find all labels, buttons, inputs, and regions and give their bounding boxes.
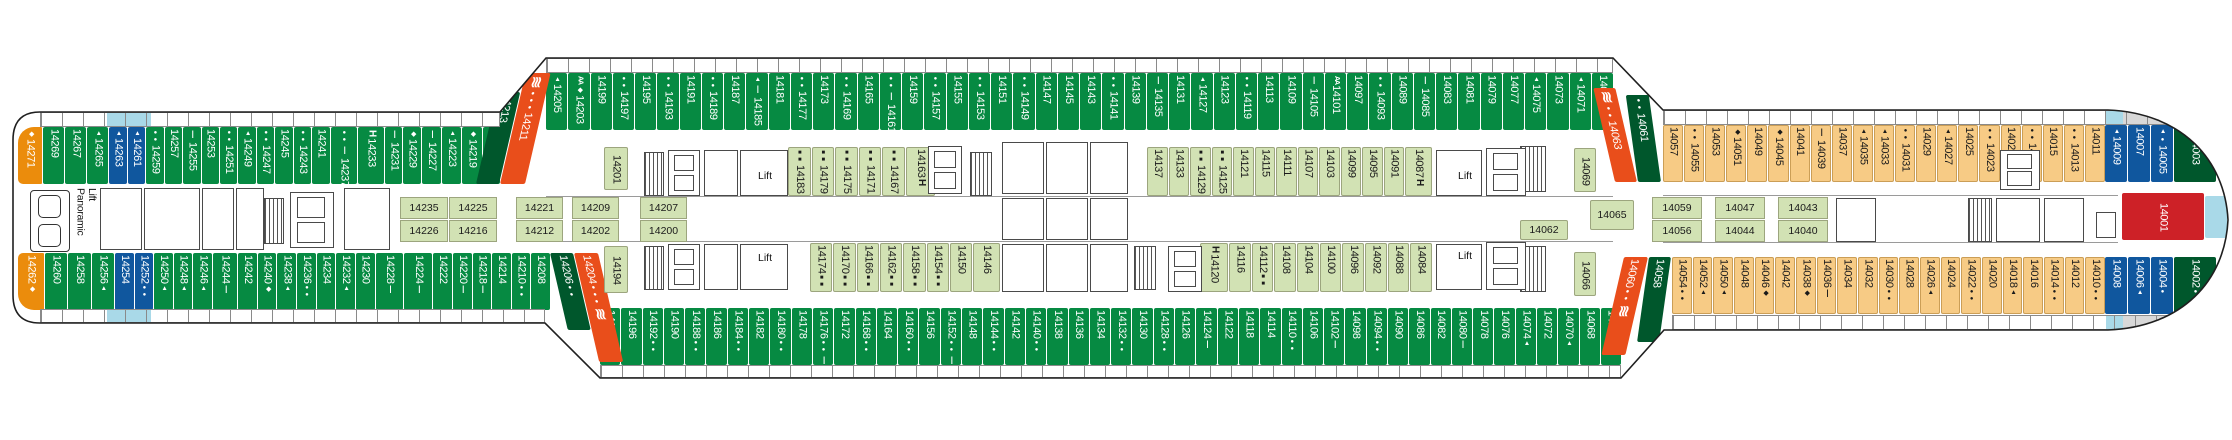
cabin-number: 14051 [1731,137,1743,166]
cabin-14092: 14092 [1365,243,1387,292]
tri-icon: ▲ [1566,340,1573,347]
cabin-number: 14197 [618,91,630,120]
cabin-14235: 14235 [400,197,448,219]
cabin-number: 14259 [149,145,161,174]
tri-icon: ▲ [1860,128,1867,135]
cabin-14121: 14121 [1233,147,1254,196]
lift-icon [668,244,700,290]
cabin-14116: 14116 [1229,243,1251,292]
dots2-icon: ●● [519,285,525,299]
cabin-number: 14201 [611,155,623,184]
cabin-number: 14096 [1348,245,1360,274]
dots2-icon: ●● [735,340,741,354]
balcony-strip-highlight [107,310,151,322]
cabin-number: 14148 [967,310,979,339]
cabin-number: 14230 [360,255,372,284]
cabin-14160: 14160●● [898,308,918,365]
dots2-icon: ●● [2029,128,2035,142]
cabin-14095: 14095 [1362,147,1383,196]
room-box [704,244,738,290]
cabin-number: 14234 [321,255,333,284]
cabin-number: 14039 [1815,140,1827,169]
dots2-icon: ●● [2071,128,2077,142]
cabin-number: 14035 [1857,136,1869,165]
sq2-icon: ■■ [842,275,848,289]
cabin-14115: 14115 [1255,147,1276,196]
dots2-icon: ●● [152,130,158,144]
cabin-number: 14057 [1668,127,1680,156]
cabin-number: 14022 [1966,259,1978,288]
cabin-number: 14074 [1520,310,1532,339]
corridor-line [546,196,1613,197]
cabin-14246: 14246▲ [193,253,212,310]
cabin-14101: AA14101 [1325,73,1346,130]
panoramic-lift-label: Panoramic Lift [74,188,97,260]
cabin-14006: 14006▲ [2128,257,2150,314]
cabin-number: 14010 [2090,259,2102,288]
cabin-14056: 14056 [1652,220,1702,242]
cabin-number: 14171 [864,165,876,194]
cabin-number: 14034 [1842,259,1854,288]
cabin-14022: 14022●● [1961,257,1981,314]
cabin-14075: ▲14075 [1525,73,1546,130]
cabin-14051: ◆14051 [1726,125,1746,182]
cabin-14146: 14146 [973,243,1000,292]
cabin-number: 14169 [840,91,852,120]
cabin-14155: 14155 [947,73,968,130]
room-box [1090,244,1128,292]
cabin-14120: H14120 [1200,243,1228,292]
cabin-14111: 14111 [1276,147,1297,196]
cabin-number: 14166 [862,245,874,274]
sofa-icon: Ⅰ [886,92,897,103]
cabin-14174: 14174■■ [810,243,832,292]
cabin-14070: 14070▲ [1558,308,1578,365]
cabin-14087: 14087H [1405,147,1432,196]
sofa-icon: Ⅰ [414,285,425,296]
cabin-block: 1422114212 [516,197,563,242]
dots3-icon: ●●● [526,91,537,112]
cabin-number: 14084 [1416,245,1428,274]
balcony-strip [40,112,500,127]
cabin-14052: 14052▲ [1693,257,1713,314]
cabin-number: 14011 [2089,127,2101,155]
cabin-14050: 14050▲ [1713,257,1733,314]
cabin-14047: 14047 [1715,197,1765,219]
cabin-number: 14206 [556,255,575,284]
cabin-number: 14052 [1697,259,1709,288]
cabin-number: 14029 [1921,127,1933,156]
cabin-number: 14188 [690,310,702,339]
dots2-icon: ●● [1605,106,1614,120]
cabin-number: 14224 [413,255,425,284]
cabin-number: 14182 [754,310,766,339]
cabin-number: 14137 [1152,149,1164,178]
cabin-number: 14112 [1257,245,1269,273]
cabin-14234: 14234 [317,253,336,310]
cabin-number: 14055 [1689,143,1701,172]
dots2-icon: ●● [1021,76,1027,90]
cabin-number: 14079 [1486,75,1498,104]
cabin-number: 14072 [1542,310,1554,339]
cabin-number: 14265 [92,138,104,167]
cabin-14085: Ⅰ14085 [1414,73,1435,130]
cabin-number: 14075 [1530,84,1542,113]
cabin-number: 14073 [1552,75,1564,104]
cabin-number: 14042 [1780,259,1792,288]
dots3-icon: ●●● [590,285,601,306]
dots2-icon: ●● [1110,76,1116,90]
cabin-row-row-bottom-fwd: 14054●●14052▲14050▲1404814046◆1404214038… [1672,257,2105,314]
cabin-number: 14085 [1419,88,1431,117]
balcony-strip-highlight [2106,111,2123,124]
cabin-number: 14160 [903,310,915,339]
dots2-icon: ●● [710,76,716,90]
cabin-number: 14267 [70,129,82,158]
tri-icon: ▲ [2160,128,2167,135]
dia-icon: ◆ [29,285,36,293]
cabin-number: 14253 [205,129,217,158]
cabin-14123: 14123 [1214,73,1235,130]
cabin-14149: ●●14149 [1013,73,1034,130]
cabin-number: 14107 [1302,149,1314,178]
cabin-row-row-bottom-wide: 14198◆1419614192●●1419014188●●1418614184… [600,308,1621,365]
room-box [1090,142,1128,194]
cabin-14231: Ⅰ14231 [385,127,402,184]
cabin-14112: 14112■■ [1252,243,1274,292]
tri-icon: ▲ [554,76,561,83]
cabin-14161: ●●Ⅰ14161 [880,73,901,130]
H-icon: H [366,130,377,137]
cabin-row-row-bottom-stern: 14262◆142601425814256▲1425414252●●14250▲… [18,253,550,310]
room-box [1046,244,1088,292]
cabin-14263: ▲14263 [109,127,126,184]
cabin-number: 14026 [1924,259,1936,288]
cabin-number: 14124 [1201,310,1213,339]
cabin-14244: 14244Ⅰ [213,253,237,310]
dots2-icon: ●● [2093,289,2099,303]
cabin-14180: 14180●● [770,308,790,365]
corridor-line [1663,195,2118,196]
cabin-14012: 14012 [2065,257,2085,314]
balcony-strip-highlight [2106,316,2123,329]
cabin-number: 14131 [1174,75,1186,104]
tri-icon: ▲ [1700,289,1707,296]
dia-icon: ◆ [265,285,272,293]
cabin-14108: 14108 [1274,243,1296,292]
cabin-number: 14133 [1173,149,1185,178]
cabin-number: 14196 [626,310,638,339]
cabin-number: 14151 [996,75,1008,104]
cabin-14009: ▲14009 [2105,125,2127,182]
cabin-14175: ■■14175 [835,147,858,196]
cabin-14200: 14200 [640,220,687,242]
panoramic-lift-label-line1: Panoramic [75,188,87,236]
cabin-14074: 14074▲ [1516,308,1536,365]
sq2-icon: ■■ [889,275,895,289]
cabin-number: 14063 [1605,121,1624,150]
cabin-14086: 14086 [1409,308,1429,365]
cabin-number: 14175 [841,165,853,194]
cabin-14269: 14269 [43,127,64,184]
cabin-number: 14046 [1759,259,1771,288]
cabin-14068: 14068 [1580,308,1600,365]
cabin-14099: 14099 [1341,147,1362,196]
sofa-icon: Ⅰ [1822,289,1833,300]
stairs-icon [264,198,284,244]
cabin-14137: 14137 [1147,147,1168,196]
cabin-number: 14078 [1478,310,1490,339]
waves-icon: ≋ [1596,91,1616,104]
cabin-14152: 14152●●Ⅰ [941,308,961,365]
dia-icon: ◆ [1762,289,1769,297]
tri-icon: ▲ [1945,128,1952,135]
cabin-14159: 14159 [902,73,923,130]
tri-icon: ▲ [449,130,456,137]
cabin-number: 14176 [818,310,830,339]
cabin-number: 14237 [338,158,350,184]
cabin-number: 14187 [729,75,741,104]
balcony-strip [600,365,1621,378]
cabin-number: 14065 [1597,209,1626,221]
cabin-number: 14100 [1325,245,1337,274]
sq2-icon: ■■ [1260,274,1266,288]
cabin-14114: 14114 [1260,308,1280,365]
cabin-14164: 14164 [877,308,897,365]
cabin-14024: 14024 [1941,257,1961,314]
tri-icon: ▲ [2137,289,2144,296]
cabin-14088: 14088 [1388,243,1410,292]
cabin-14153: ●●14153 [969,73,990,130]
cabin-number: 14180 [775,310,787,339]
cabin-14104: 14104 [1297,243,1319,292]
cabin-number: 14103 [1324,149,1336,178]
cabin-14255: Ⅰ14255 [183,127,200,184]
cabin-number: 14249 [242,138,254,167]
cabin-number: 14066 [1580,261,1592,290]
cabin-14079: 14079 [1481,73,1502,130]
sofa-icon: Ⅰ [1420,76,1431,87]
room-box [1836,198,1876,242]
cabin-14032: 14032 [1858,257,1878,314]
cabin-number: 14094 [1371,310,1383,339]
dots2-icon: ●● [263,130,269,144]
cabin-14125: ■■14125 [1212,147,1233,196]
cabin-14124: 14124Ⅰ [1196,308,1216,365]
dots2-icon: ●● [2051,289,2057,303]
tri-icon: ▲ [134,130,141,137]
room-box [202,188,234,250]
balcony-strip-highlight [107,113,151,126]
cabin-14224: 14224Ⅰ [404,253,432,310]
sofa-icon: Ⅰ [427,130,438,141]
cabin-14185: ▲Ⅰ14185 [746,73,767,130]
cabin-number: 14076 [1499,310,1511,339]
cabin-number: 14141 [1107,91,1119,120]
cabin-14066: 14066 [1574,252,1596,296]
cabin-14228: 14228Ⅰ [376,253,404,310]
lift-icon [668,150,700,196]
cabin-14253: 14253 [202,127,219,184]
cabin-14271: ◆14271 [18,127,42,184]
cabin-number: 14257 [168,129,180,158]
cabin-14143: 14143 [1080,73,1101,130]
cabin-14212: 14212 [516,220,563,242]
stairs-icon [1134,246,1156,290]
waves-icon: ≋ [590,308,610,321]
cabin-14049: 14049 [1747,125,1767,182]
dots2-icon: ●● [1622,289,1631,303]
sq2-icon: ■■ [820,150,826,164]
cabin-number: 14128 [1158,310,1170,339]
cabin-number: 14183 [794,165,806,194]
cabin-14096: 14096 [1342,243,1364,292]
cabin-14016: 14016 [2023,257,2043,314]
dots2-icon: ●● [1289,339,1295,353]
cabin-14141: ●●14141 [1102,73,1123,130]
cabin-number: 14012 [2069,259,2081,288]
cabin-14036: 14036Ⅰ [1817,257,1837,314]
room-box [144,188,200,250]
dia-icon: ◆ [469,130,476,138]
dots2-icon: ●● [906,340,912,354]
sofa-icon: Ⅰ [385,285,396,296]
cabin-14142: 14142 [1005,308,1025,365]
dots2-icon: ●● [888,76,894,90]
dots2-icon: ●● [1374,340,1380,354]
cabin-14093: ●●14093 [1369,73,1390,130]
dots2-icon: ●● [948,340,954,354]
cabin-14131: 14131 [1169,73,1190,130]
cabin-14151: 14151 [991,73,1012,130]
cabin-number: 14098 [1350,310,1362,339]
cabin-number: 14232 [340,255,352,284]
balcony-strip-highlight [2123,316,2206,329]
sofa-icon: Ⅰ [1458,340,1469,351]
cabin-14040: 14040 [1778,220,1828,242]
cabin-row-row-bow-bottom: 1400814006▲14004●14002● [2105,257,2216,314]
cabin-14089: 14089 [1392,73,1413,130]
dia-icon: ◆ [1734,128,1741,136]
cabin-number: 14130 [1137,310,1149,339]
dots2-icon: ●● [1377,76,1383,90]
cabin-14182: 14182 [749,308,769,365]
cabin-14132: 14132●● [1111,308,1131,365]
cabin-14034: 14034 [1837,257,1857,314]
cabin-number: 14247 [260,145,272,174]
cabin-number: 14108 [1280,245,1292,274]
room-box [1002,198,1044,240]
dia-icon: ◆ [1776,128,1783,136]
cabin-number: 14193 [662,91,674,120]
sofa-icon: Ⅰ [752,85,763,96]
cabin-number: 14005 [2157,145,2169,174]
dot-icon: ● [2160,289,2166,296]
cabin-14147: 14147 [1036,73,1057,130]
dia-icon: ◆ [576,86,583,94]
cabin-14080: 14080Ⅰ [1452,308,1472,365]
dots2-icon: ●● [141,285,147,299]
cabin-14083: 14083 [1436,73,1457,130]
cabin-14039: Ⅰ14039 [1811,125,1831,182]
room-box [1996,198,2040,242]
sofa-icon: Ⅰ [1816,128,1827,139]
lift-label: Lift [1442,170,1488,182]
cabin-14081: 14081 [1458,73,1479,130]
dia-icon: ◆ [28,130,35,138]
cabin-number: 14020 [1986,259,1998,288]
cabin-14223: ▲14223 [442,127,461,184]
cabin-14237: ●●Ⅰ14237 [331,127,357,184]
dots2-icon: ●● [1987,128,1993,142]
cabin-number: 14048 [1738,259,1750,288]
cabin-14238: 14238▲ [277,253,296,310]
room-box [1046,198,1088,240]
H-icon: H [1414,179,1425,186]
sofa-icon: Ⅰ [1309,76,1320,87]
cabin-number: 14018 [2007,259,2019,288]
cabin-number: 14214 [496,255,508,284]
cabin-14076: 14076 [1494,308,1514,365]
cabin-number: 14142 [1009,310,1021,339]
room-box [2044,198,2084,242]
cabin-number: 14144 [988,310,1000,339]
cabin-number: 14125 [1216,165,1228,194]
cabin-14033: ▲14033 [1874,125,1894,182]
cabin-14156: 14156 [919,308,939,365]
cabin-number: 14025 [1963,127,1975,156]
cabin-14165: 14165 [858,73,879,130]
cabin-number: 14238 [281,255,293,284]
cabin-14102: 14102Ⅰ [1324,308,1344,365]
cabin-number: 14147 [1041,75,1053,104]
cabin-number: 14036 [1821,259,1833,288]
cabin-number: 14172 [839,310,851,339]
cabin-14205: ▲14205 [546,73,567,130]
cabin-14005: ▲●14005 [2151,125,2173,182]
cabin-row-row-bow-top: ▲1400914007▲●14005●14003 [2105,125,2216,182]
cabin-number: 14178 [796,310,808,339]
cabin-number: 14129 [1195,165,1207,194]
cabin-number: 14030 [1883,259,1895,288]
cabin-number: 14038 [1800,259,1812,288]
cabin-14222: 14222 [433,253,452,310]
cabin-14203: AA◆14203 [568,73,589,130]
dots2-icon: ●● [226,130,232,144]
tri-icon: ▲ [200,285,207,292]
cabin-number: 14208 [535,255,547,284]
cabin-14001: 14001 [2122,193,2204,240]
panoramic-lift-icon [30,190,70,252]
cabin-14214: 14214 [492,253,511,310]
stairs-icon [1968,198,1992,242]
waves-icon: ≋ [1614,305,1634,318]
stairs-icon [970,152,992,196]
cabin-14055: ●●14055 [1684,125,1704,182]
sofa-icon: Ⅰ [221,285,232,296]
room-box [2096,212,2116,238]
tri-icon: ▲ [100,285,107,292]
dots2-icon: ●● [1679,289,1685,303]
tri-icon: ▲ [1523,340,1530,347]
cabin-block: 1420714200 [640,197,687,242]
cabin-14077: 14077 [1503,73,1524,130]
cabin-number: 14014 [2048,259,2060,288]
H-icon: H [916,179,927,186]
cabin-14154: 14154■■ [927,243,949,292]
cabin-14243: ●●14243 [294,127,311,184]
dots2-icon: ●● [1969,289,1975,303]
